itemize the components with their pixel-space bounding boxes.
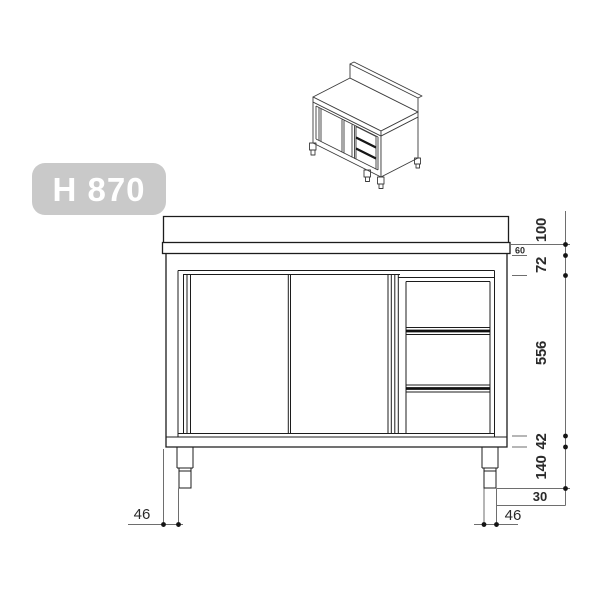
upstand — [164, 217, 509, 243]
drawer-gap-1 — [406, 328, 490, 335]
dim-label-top-rail: 72 — [533, 257, 550, 273]
worktop — [163, 243, 511, 254]
cabinet-body — [166, 254, 507, 448]
height-badge-label: H 870 — [52, 173, 145, 206]
dim-label-opening-height: 556 — [533, 341, 550, 365]
door-track-right — [391, 275, 398, 434]
leg-left — [177, 447, 193, 488]
dim-label-worktop-thickness: 60 — [515, 246, 525, 256]
dim-label-leg-inset-left: 46 — [134, 506, 151, 523]
dimension-annotations: 100 60 72 556 42 140 30 46 46 — [128, 211, 570, 527]
dim-label-leg-inset-right: 30 — [533, 489, 547, 504]
dim-label-bottom-rail: 42 — [533, 433, 550, 449]
drawer-stack — [398, 278, 494, 434]
isometric-thumbnail — [310, 62, 423, 189]
drawing-canvas: 100 60 72 556 42 140 30 46 46 — [0, 0, 600, 600]
technical-drawing: 100 60 72 556 42 140 30 46 46 H 870 — [0, 0, 600, 600]
front-elevation — [163, 217, 511, 489]
door-track-left — [184, 275, 191, 434]
sliding-door-left — [288, 275, 290, 434]
dim-label-leg-height: 140 — [533, 455, 550, 479]
height-badge: H 870 — [32, 163, 166, 215]
dim-label-upstand-height: 100 — [533, 218, 550, 242]
dim-label-right-foot-width: 46 — [505, 507, 522, 524]
drawer-gap-2 — [406, 385, 490, 392]
leg-right — [482, 447, 498, 488]
